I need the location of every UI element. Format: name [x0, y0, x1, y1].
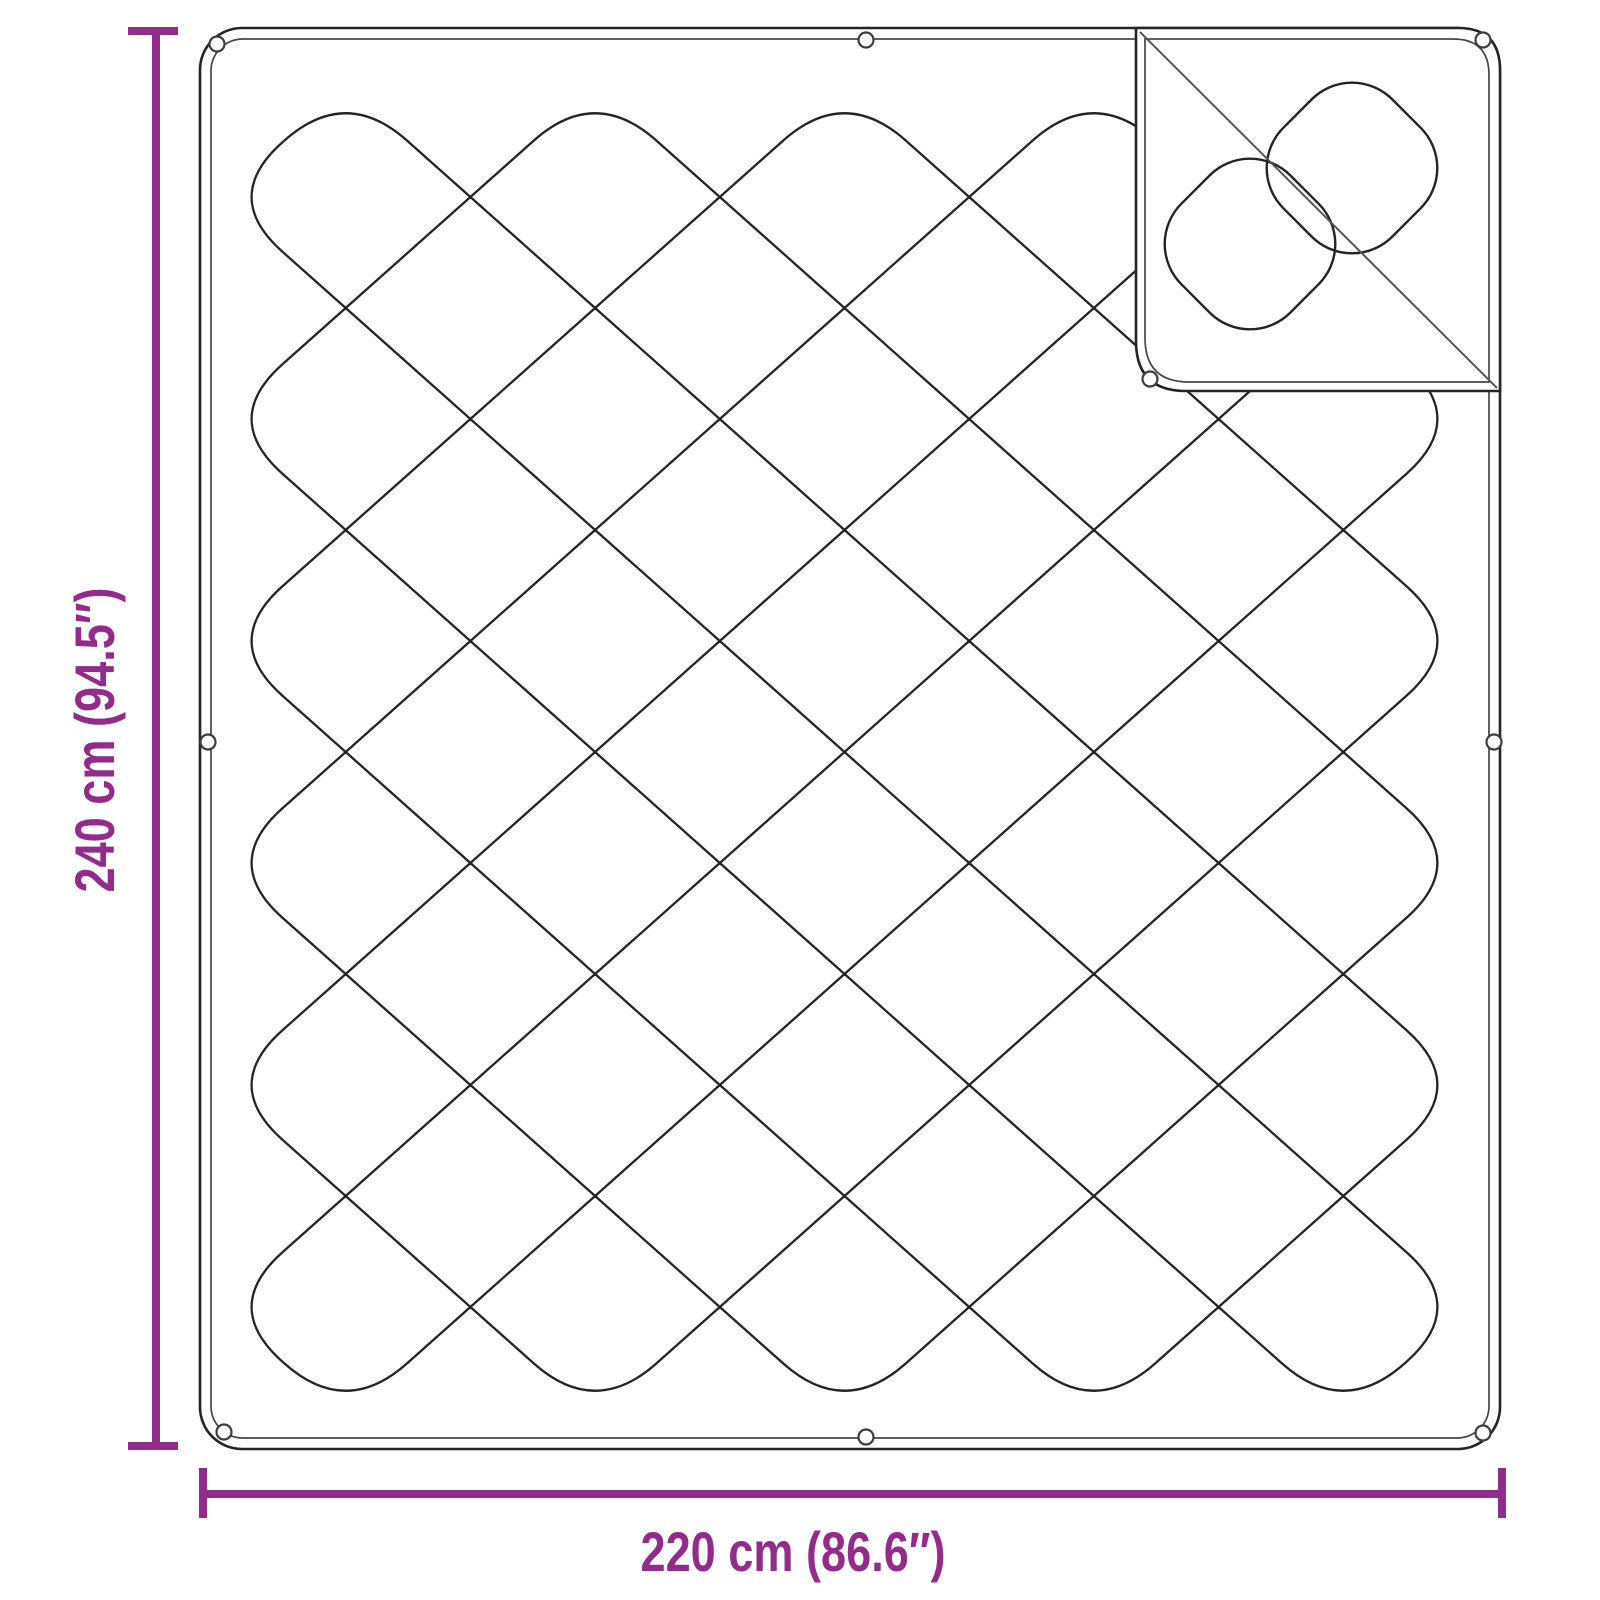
width-dimension-line [203, 1490, 1502, 1498]
height-dimension: 240 cm (94.5″) [63, 27, 178, 1450]
grommet [217, 1425, 232, 1440]
blanket-dimension-drawing: 240 cm (94.5″) 220 cm (86.6″) [0, 0, 1600, 1600]
height-dimension-label: 240 cm (94.5″) [63, 588, 126, 893]
grommet [201, 735, 216, 750]
grommet [859, 33, 874, 48]
height-dimension-tick-bottom [128, 1442, 178, 1450]
grommet [210, 37, 225, 52]
width-dimension: 220 cm (86.6″) [199, 1468, 1506, 1583]
width-dimension-tick-right [1498, 1468, 1506, 1518]
width-dimension-label: 220 cm (86.6″) [641, 1520, 946, 1583]
grommet [1143, 372, 1158, 387]
width-dimension-tick-left [199, 1468, 207, 1518]
product-dimension-diagram: 240 cm (94.5″) 220 cm (86.6″) [0, 0, 1600, 1600]
grommet [1487, 735, 1502, 750]
grommet [859, 1430, 874, 1445]
folded-corner-flap [1136, 28, 1500, 391]
grommet [1476, 1426, 1491, 1441]
height-dimension-line [152, 29, 160, 1448]
grommet [1476, 33, 1491, 48]
height-dimension-tick-top [128, 27, 178, 35]
